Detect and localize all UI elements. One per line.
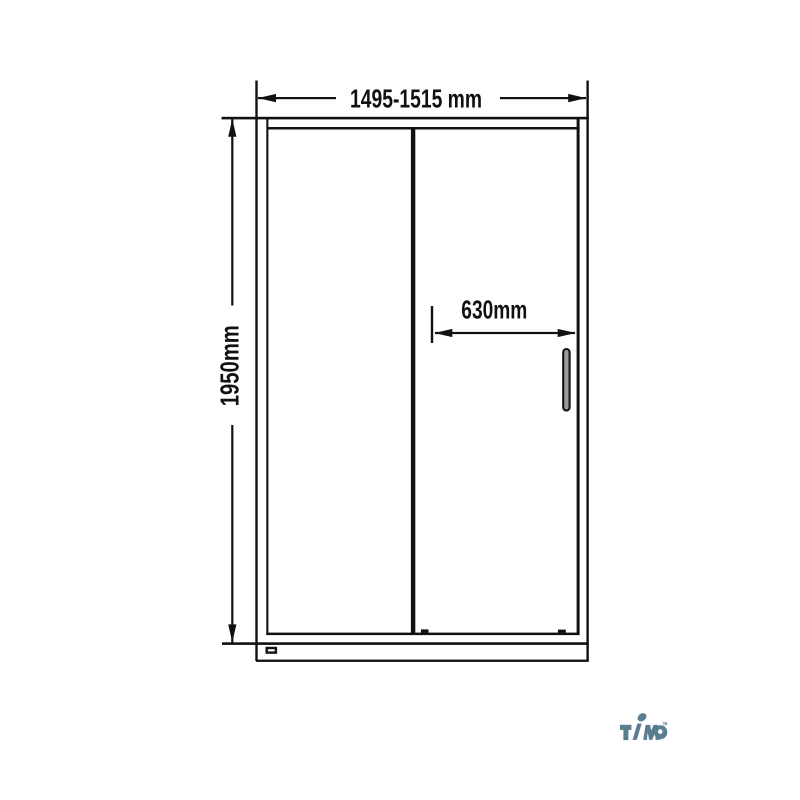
- svg-text:1495-1515 mm: 1495-1515 mm: [350, 84, 482, 114]
- svg-text:630mm: 630mm: [461, 295, 527, 325]
- svg-text:1950mm: 1950mm: [215, 325, 245, 406]
